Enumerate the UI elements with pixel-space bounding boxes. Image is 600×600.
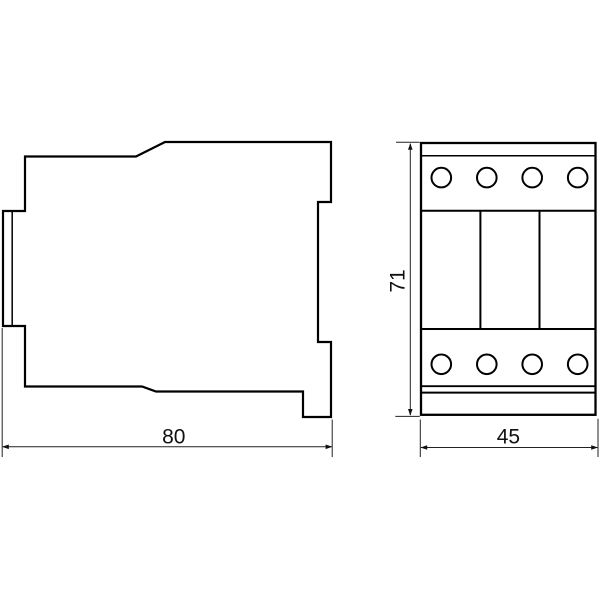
svg-text:71: 71 xyxy=(387,269,410,292)
svg-text:45: 45 xyxy=(497,425,520,448)
svg-text:80: 80 xyxy=(162,426,185,449)
